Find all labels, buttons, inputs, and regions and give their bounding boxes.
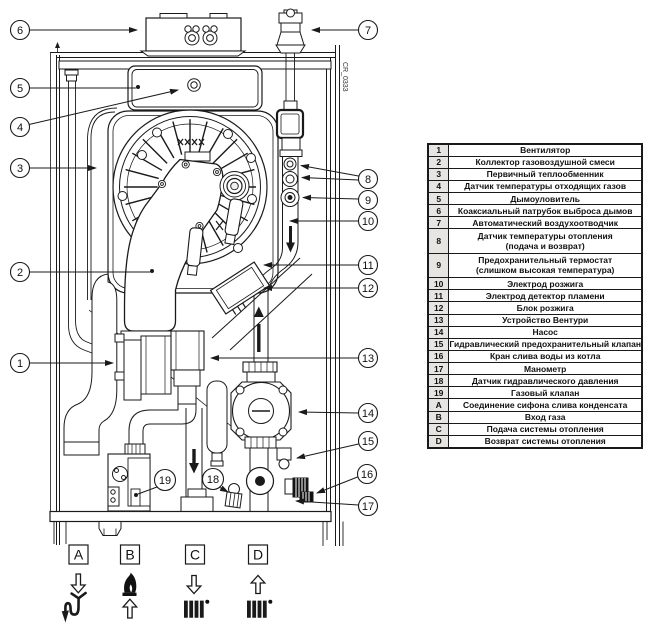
svg-text:6: 6 bbox=[17, 25, 23, 37]
svg-text:D: D bbox=[253, 547, 263, 563]
svg-text:CR_0333: CR_0333 bbox=[341, 62, 348, 92]
svg-text:8: 8 bbox=[365, 174, 371, 186]
svg-text:9: 9 bbox=[365, 195, 371, 207]
svg-text:B: B bbox=[125, 547, 134, 563]
svg-text:12: 12 bbox=[362, 283, 374, 295]
svg-text:16: 16 bbox=[361, 469, 373, 481]
svg-text:18: 18 bbox=[207, 474, 219, 486]
svg-text:1: 1 bbox=[17, 358, 23, 370]
svg-text:7: 7 bbox=[365, 25, 371, 37]
svg-text:10: 10 bbox=[362, 216, 374, 228]
svg-text:15: 15 bbox=[362, 436, 374, 448]
svg-text:A: A bbox=[74, 547, 84, 563]
svg-text:C: C bbox=[190, 547, 200, 563]
svg-text:5: 5 bbox=[17, 83, 23, 95]
svg-text:4: 4 bbox=[17, 122, 23, 134]
svg-text:17: 17 bbox=[362, 501, 374, 513]
svg-text:13: 13 bbox=[362, 353, 374, 365]
svg-text:2: 2 bbox=[17, 267, 23, 279]
svg-text:19: 19 bbox=[159, 475, 171, 487]
svg-text:14: 14 bbox=[362, 408, 374, 420]
svg-text:11: 11 bbox=[362, 260, 373, 272]
svg-text:3: 3 bbox=[17, 163, 23, 175]
